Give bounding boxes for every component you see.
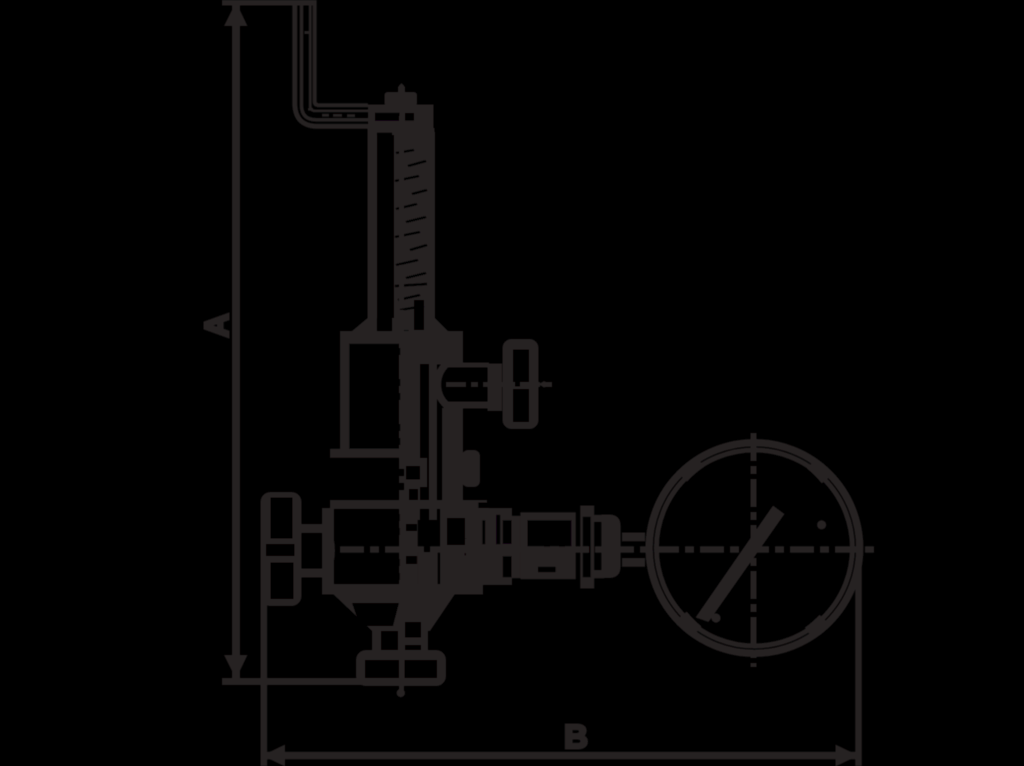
svg-text:B: B — [564, 718, 588, 755]
svg-text:A: A — [198, 314, 235, 338]
